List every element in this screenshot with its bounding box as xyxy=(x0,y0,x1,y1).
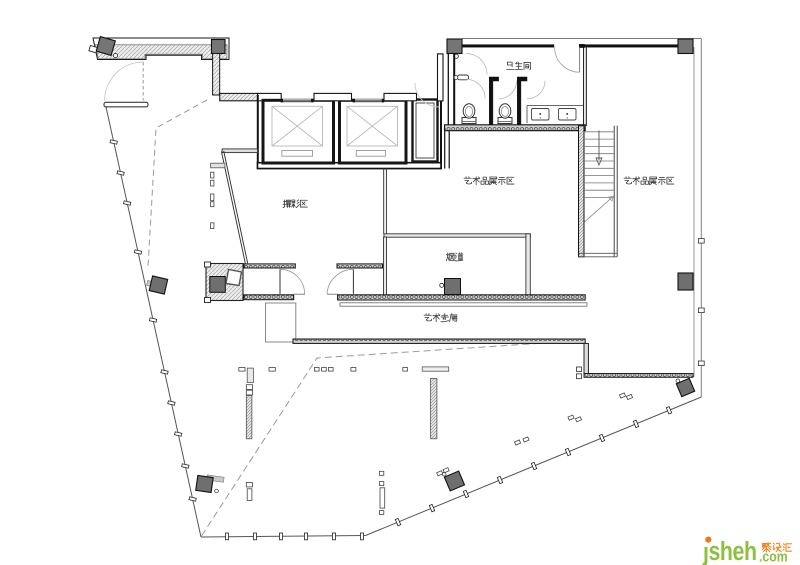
svg-text:.com: .com xyxy=(759,548,788,564)
